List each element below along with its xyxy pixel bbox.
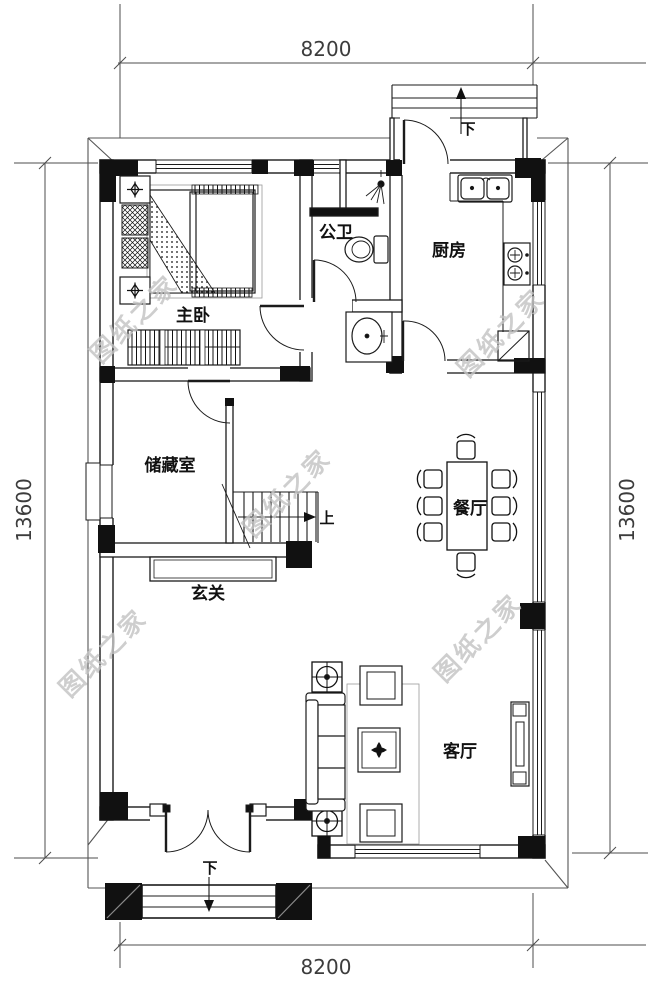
- shower-head-icon: [366, 170, 384, 204]
- bedroom-door: [260, 306, 304, 350]
- storage-door: [188, 381, 230, 423]
- stove: [504, 243, 530, 285]
- entrance-porch: 下: [105, 859, 312, 920]
- bathroom-label: 公卫: [319, 223, 353, 243]
- top-dimension-value: 8200: [301, 37, 352, 61]
- living-label: 客厅: [442, 741, 477, 762]
- sofa: [306, 693, 345, 811]
- main-staircase: 上: [222, 484, 335, 548]
- armchair: [360, 666, 402, 705]
- rear-landing-door: [404, 120, 448, 164]
- kitchen-door: [403, 321, 445, 361]
- floor-plan-drawing: 8200 8200 13600 13600: [0, 0, 650, 997]
- foyer-cabinet: [150, 557, 276, 581]
- entry-down-label: 下: [202, 859, 217, 877]
- rear-down-label: 下: [460, 120, 475, 138]
- tv-cabinet: [511, 702, 529, 786]
- dining-label: 餐厅: [453, 498, 487, 519]
- coffee-table: [358, 728, 400, 772]
- right-dimension: 13600: [548, 157, 648, 859]
- bathroom-door: [314, 260, 356, 302]
- storage-label: 储藏室: [145, 455, 196, 476]
- stair-up-arrow-icon: [238, 512, 316, 522]
- kitchen-fixtures: [450, 173, 530, 361]
- right-dimension-value: 13600: [615, 478, 639, 542]
- side-table: [312, 662, 342, 692]
- living-furniture: [306, 662, 529, 844]
- left-dimension-value: 13600: [12, 478, 36, 542]
- kitchen-sink: [458, 175, 512, 202]
- top-dimension: 8200: [114, 4, 646, 138]
- left-dimension: 13600: [12, 157, 98, 864]
- entrance-double-door: [150, 804, 266, 852]
- bathroom-fixtures: [345, 170, 392, 362]
- nightstand: [120, 176, 150, 203]
- washbasin: [346, 312, 392, 362]
- kitchen-label: 厨房: [432, 240, 466, 261]
- master-bedroom-label: 主卧: [176, 305, 210, 326]
- doors: [150, 120, 448, 852]
- armchair: [360, 804, 402, 842]
- bedroom-furniture: [120, 176, 262, 365]
- refrigerator: [498, 331, 529, 361]
- rear-landing: 下: [392, 85, 537, 138]
- floor-plan-canvas: 8200 8200 13600 13600: [0, 0, 650, 997]
- wardrobe: [128, 330, 240, 365]
- stair-up-label: 上: [319, 509, 334, 527]
- bottom-dimension-value: 8200: [301, 955, 352, 979]
- foyer-label: 玄关: [191, 583, 225, 604]
- nightstand: [120, 277, 150, 304]
